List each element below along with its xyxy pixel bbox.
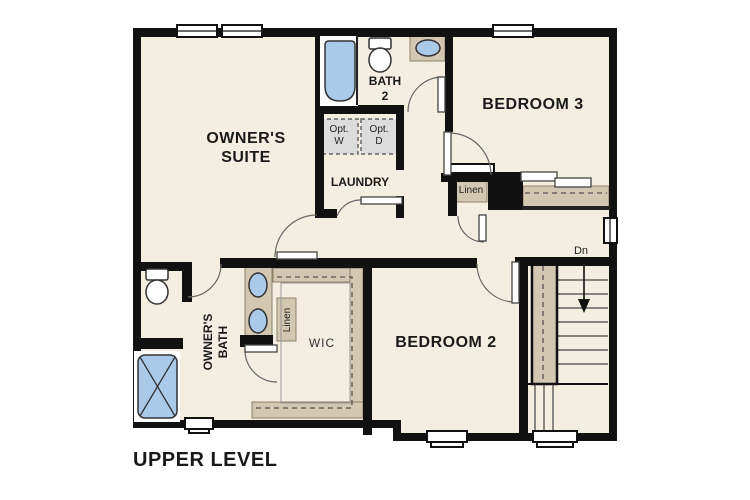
linen-bath-label: Linen [282,308,293,332]
window-owners-bath [185,418,213,433]
washer-label-line2: W [334,136,344,147]
washer-label-line1: Opt. [330,124,349,135]
toilet-bath2 [369,38,391,72]
owners-suite-label-line2: SUITE [221,149,271,166]
shower [134,351,180,422]
toilet-owners-bath [146,269,168,304]
window-bedroom2 [427,431,467,447]
window-owners-suite-1 [177,25,217,37]
window-bedroom3 [493,25,533,37]
plan-title: UPPER LEVEL [133,449,277,471]
owners-suite-label-line1: OWNER'S [206,130,285,147]
bath2-label-line2: 2 [382,89,389,103]
linen-hall-label: Linen [459,185,483,196]
owners-bath-label-line2: BATH [216,326,230,358]
bedroom2-label: BEDROOM 2 [395,334,496,351]
wic-shelf-bottom [252,402,363,418]
laundry-label: LAUNDRY [331,175,389,189]
window-owners-suite-2 [222,25,262,37]
bathtub [320,36,358,106]
dryer-label-line2: D [375,136,382,147]
wic-label: WIC [309,336,335,350]
window-stair-landing [533,431,577,447]
window-hall-right [604,218,617,243]
owners-bath-label-line1: OWNER'S [201,314,215,371]
bedroom3-label: BEDROOM 3 [482,96,583,113]
bath2-label-line1: BATH [369,74,401,88]
floor-plan: OWNER'S SUITE BEDROOM 3 BEDROOM 2 LAUNDR… [0,0,750,500]
dryer-label-line1: Opt. [370,124,389,135]
stair-guard-wall [532,262,557,384]
sink-bath2 [416,40,440,56]
floor-plan-page: OWNER'S SUITE BEDROOM 3 BEDROOM 2 LAUNDR… [0,0,750,500]
stairs-down-label: Dn [574,245,588,257]
bedroom3-closet-shelf [523,186,609,208]
